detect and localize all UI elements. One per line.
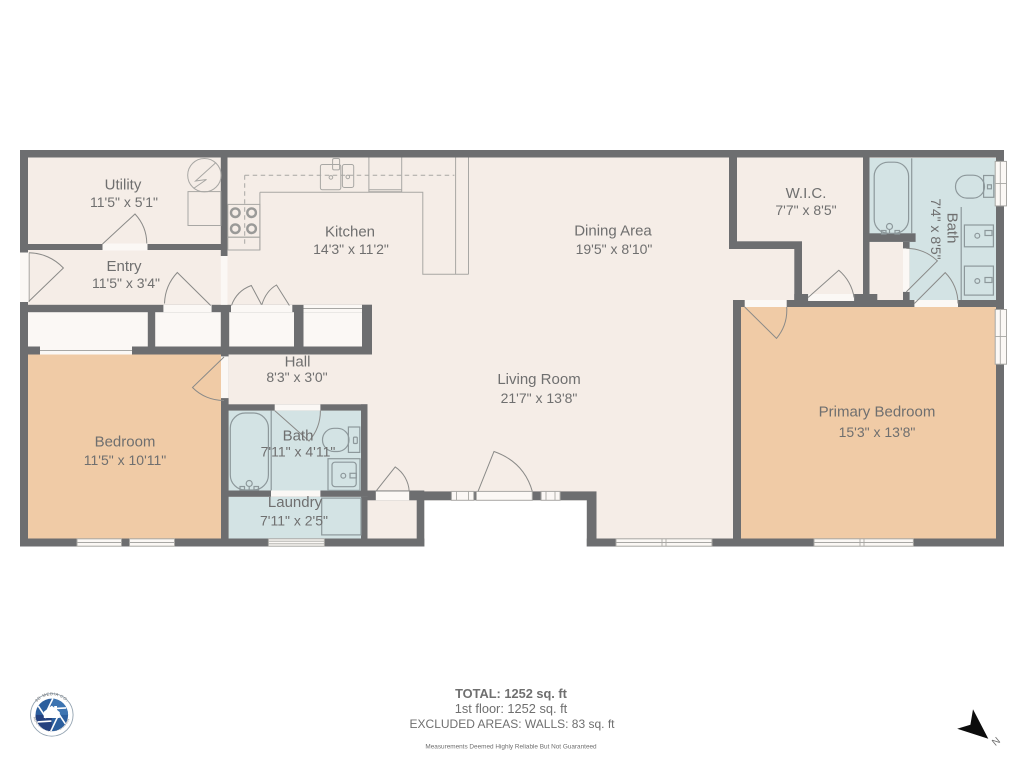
svg-text:Utility: Utility	[105, 177, 142, 194]
svg-text:21'7" x 13'8": 21'7" x 13'8"	[501, 390, 578, 406]
svg-text:8'3" x 3'0": 8'3" x 3'0"	[266, 369, 327, 385]
svg-text:TOTAL: 1252 sq. ft: TOTAL: 1252 sq. ft	[455, 686, 568, 701]
svg-text:11'5" x 3'4": 11'5" x 3'4"	[92, 275, 160, 291]
svg-text:15'3" x 13'8": 15'3" x 13'8"	[839, 424, 916, 440]
svg-text:Bedroom: Bedroom	[95, 434, 156, 451]
svg-text:7'11" x 4'11": 7'11" x 4'11"	[261, 444, 336, 460]
svg-text:1st floor: 1252 sq. ft: 1st floor: 1252 sq. ft	[455, 701, 568, 716]
svg-text:14'3" x 11'2": 14'3" x 11'2"	[313, 241, 389, 257]
svg-text:W.I.C.: W.I.C.	[786, 185, 827, 202]
svg-text:Entry: Entry	[106, 258, 142, 275]
svg-text:EXCLUDED AREAS: WALLS: 83 sq.: EXCLUDED AREAS: WALLS: 83 sq. ft	[410, 717, 616, 731]
svg-text:Living Room: Living Room	[497, 371, 580, 388]
svg-text:Hall: Hall	[285, 354, 311, 371]
svg-text:11'5" x 5'1": 11'5" x 5'1"	[90, 194, 158, 210]
svg-text:Measurements Deemed Highly Rel: Measurements Deemed Highly Reliable But …	[425, 744, 597, 751]
svg-text:11'5" x 10'11": 11'5" x 10'11"	[84, 452, 167, 468]
svg-text:Kitchen: Kitchen	[325, 224, 375, 241]
svg-text:Bath: Bath	[944, 213, 961, 244]
svg-text:Laundry: Laundry	[268, 494, 323, 511]
svg-text:Primary Bedroom: Primary Bedroom	[819, 404, 936, 421]
svg-text:7'7" x 8'5": 7'7" x 8'5"	[775, 202, 836, 218]
svg-text:7'4" x 8'5": 7'4" x 8'5"	[928, 198, 944, 259]
svg-text:7'11" x 2'5": 7'11" x 2'5"	[260, 513, 328, 529]
svg-text:Bath: Bath	[283, 428, 314, 445]
svg-text:19'5" x 8'10": 19'5" x 8'10"	[576, 241, 653, 257]
svg-text:Dining Area: Dining Area	[574, 223, 652, 240]
